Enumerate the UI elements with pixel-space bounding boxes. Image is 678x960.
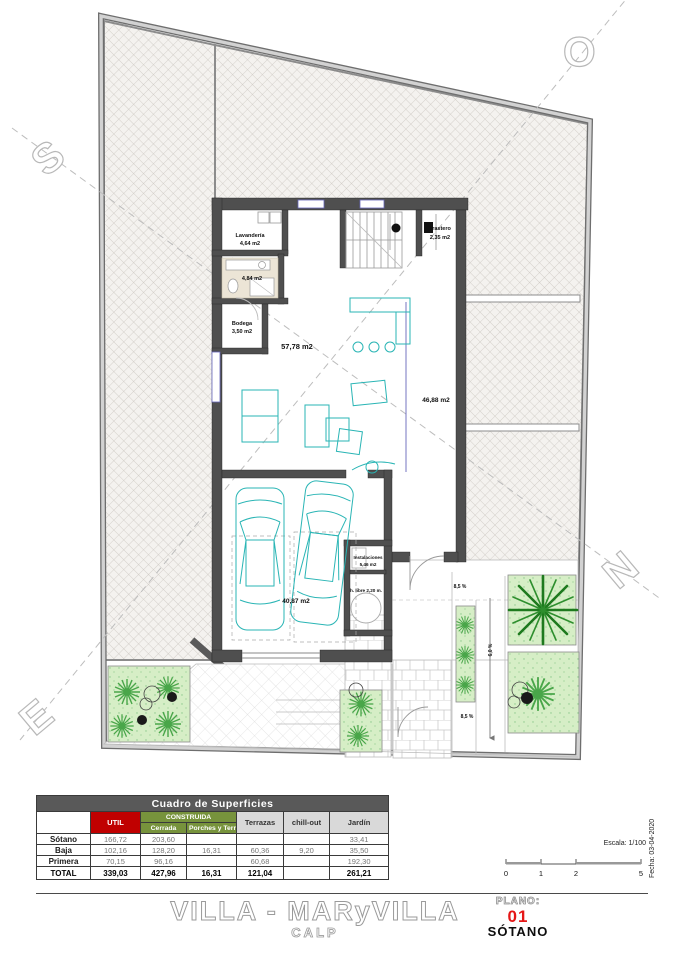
col-header-porches: Porches y Terrazas <box>187 823 237 834</box>
project-title: VILLA - MARyVILLA <box>120 898 510 925</box>
label-garage-area: 40,87 m2 <box>282 598 310 605</box>
compass-o: O <box>563 28 596 75</box>
project-title-block: VILLA - MARyVILLA CALP <box>120 898 510 939</box>
floorplan-drawing: S O N E <box>0 0 678 790</box>
label-bodega: Bodega <box>232 321 253 327</box>
water-tank <box>351 593 381 623</box>
project-location: CALP <box>120 926 510 939</box>
cell <box>187 856 237 867</box>
cell <box>284 867 330 880</box>
scale-label: Escala: 1/100 <box>556 840 646 847</box>
cell: 192,30 <box>330 856 389 867</box>
compass-n: N <box>594 542 647 598</box>
col-header-cerrada: Cerrada <box>141 823 187 834</box>
table-title: Cuadro de Superficies <box>37 796 389 812</box>
label-headroom: h. libre 2,20 m. <box>350 588 382 593</box>
cell: 166,72 <box>91 834 141 845</box>
cars <box>232 480 356 642</box>
date-label: Fecha: 03-04-2020 <box>649 819 656 878</box>
divider-rule <box>36 893 648 894</box>
cell <box>284 834 330 845</box>
table-row-sotano: Sótano 166,72 203,60 33,41 <box>37 834 389 845</box>
col-header-construida: CONSTRUIDA <box>141 812 237 823</box>
row-label: Sótano <box>37 834 91 845</box>
cell: 203,60 <box>141 834 187 845</box>
label-lavanderia: Lavandería <box>235 233 265 239</box>
label-instalaciones-area: 5,46 m2 <box>360 562 377 567</box>
cell <box>187 834 237 845</box>
label-bath-area: 4,84 m2 <box>242 276 262 282</box>
cell: 96,16 <box>141 856 187 867</box>
col-header-jardin: Jardín <box>330 812 389 834</box>
cell: 16,31 <box>187 867 237 880</box>
laundry-appliances <box>258 212 281 223</box>
scale-tick-5: 5 <box>639 869 643 878</box>
label-east-area: 46,88 m2 <box>422 397 450 404</box>
stairs-main <box>346 212 402 268</box>
cell <box>284 856 330 867</box>
row-label: Baja <box>37 845 91 856</box>
label-bodega-area: 3,50 m2 <box>232 329 252 335</box>
cell: 339,03 <box>91 867 141 880</box>
label-salon-area: 57,78 m2 <box>281 342 313 351</box>
plan-sheet: S O N E <box>0 0 678 960</box>
cell: 16,31 <box>187 845 237 856</box>
col-header-util: UTIL <box>91 812 141 834</box>
cell: 261,21 <box>330 867 389 880</box>
compass-s: S <box>22 131 74 185</box>
surfaces-table: Cuadro de Superficies UTIL CONSTRUIDA Te… <box>36 795 389 880</box>
cell: 70,15 <box>91 856 141 867</box>
table-row-baja: Baja 102,16 128,20 16,31 60,36 9,20 35,5… <box>37 845 389 856</box>
row-label: Primera <box>37 856 91 867</box>
cell: 9,20 <box>284 845 330 856</box>
cell <box>237 834 284 845</box>
label-trastero: Trastero <box>429 226 451 232</box>
car-1 <box>236 488 284 630</box>
label-trastero-area: 2,35 m2 <box>430 235 450 241</box>
cell: 102,16 <box>91 845 141 856</box>
row-label: TOTAL <box>37 867 91 880</box>
cell: 60,68 <box>237 856 284 867</box>
machinery <box>390 214 436 250</box>
terrain-divider <box>463 295 580 302</box>
scale-bar: 0 1 2 5 <box>504 856 649 882</box>
terrain-divider <box>463 424 579 431</box>
cell: 35,50 <box>330 845 389 856</box>
scale-tick-1: 1 <box>539 869 543 878</box>
label-lavanderia-area: 4,64 m2 <box>240 241 260 247</box>
terrain-top-right <box>215 45 588 610</box>
label-slope-bottom: 8,5 % <box>461 714 474 720</box>
terrain-left <box>104 21 215 660</box>
cell: 60,36 <box>237 845 284 856</box>
col-header-chillout: chill-out <box>284 812 330 834</box>
label-instalaciones: Instalaciones <box>353 555 383 560</box>
scale-tick-2: 2 <box>574 869 578 878</box>
table-row-primera: Primera 70,15 96,16 60,68 192,30 <box>37 856 389 867</box>
label-slope-ramp: 6,0 % <box>488 643 494 656</box>
col-header-terrazas: Terrazas <box>237 812 284 834</box>
cell: 128,20 <box>141 845 187 856</box>
scale-tick-0: 0 <box>504 869 508 878</box>
table-corner-cell <box>37 812 91 834</box>
table-row-total: TOTAL 339,03 427,96 16,31 121,04 261,21 <box>37 867 389 880</box>
cell: 427,96 <box>141 867 187 880</box>
label-slope-top: 8,5 % <box>454 584 467 590</box>
cell: 121,04 <box>237 867 284 880</box>
cell: 33,41 <box>330 834 389 845</box>
palm-tree <box>509 576 577 644</box>
